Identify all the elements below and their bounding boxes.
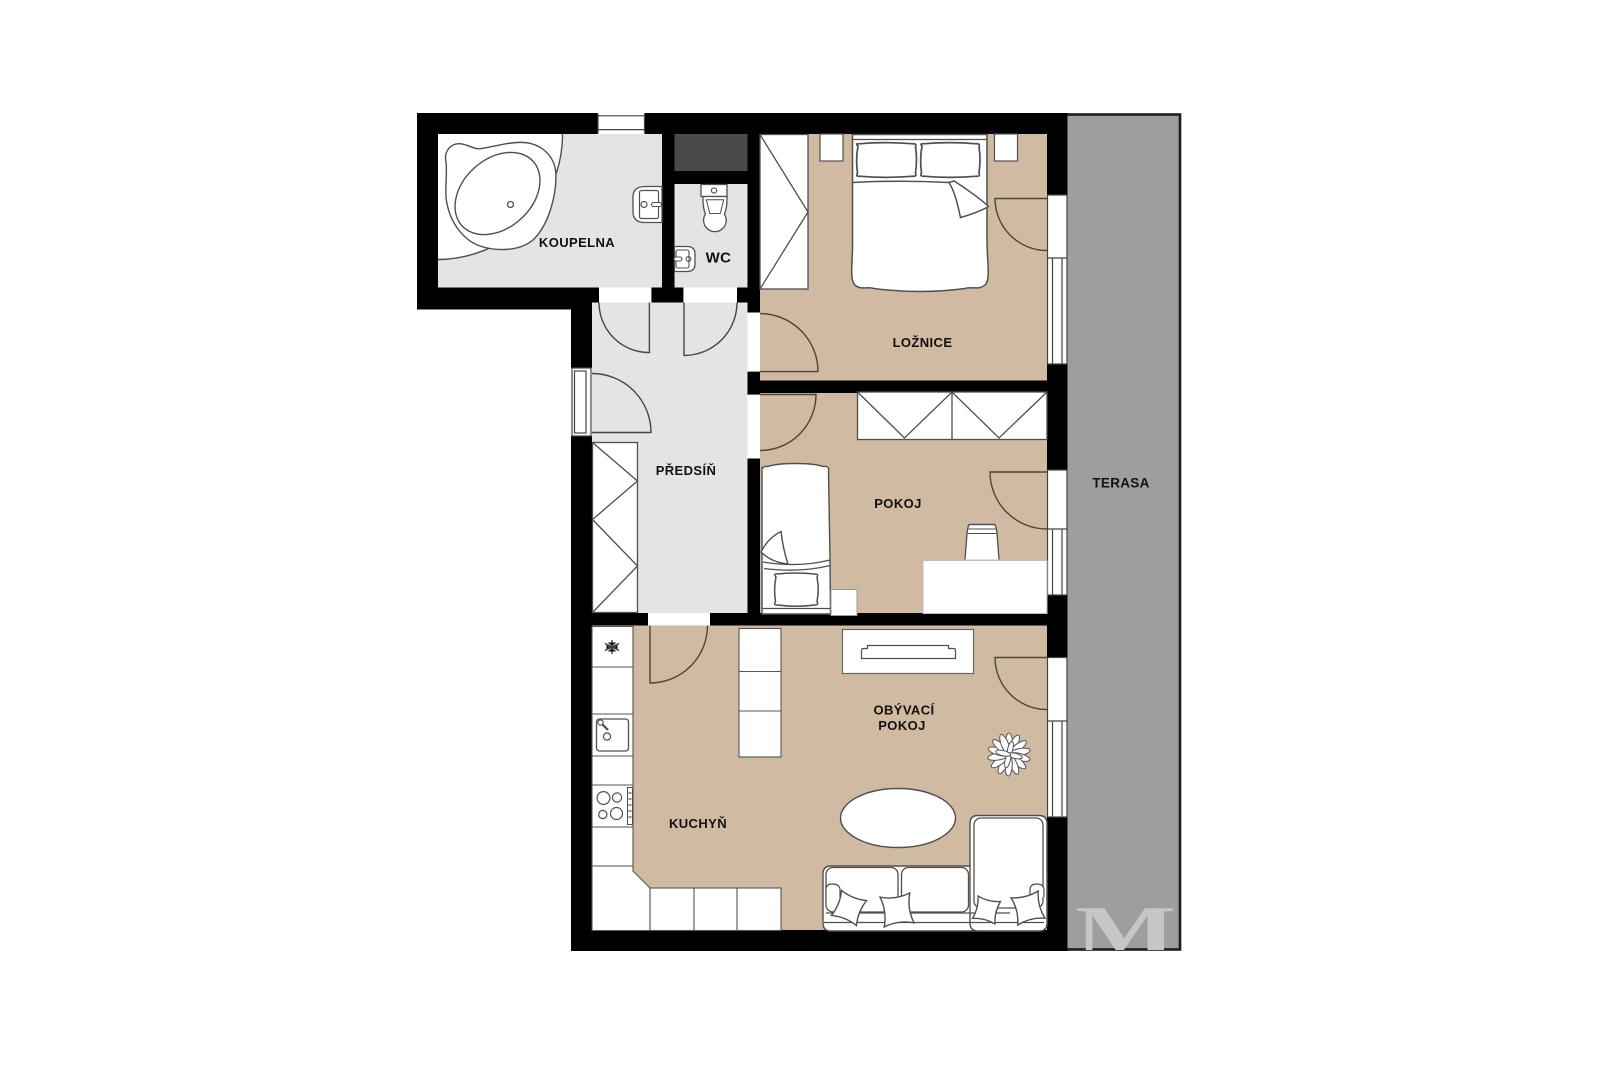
svg-text:OBÝVACÍ: OBÝVACÍ xyxy=(873,703,934,718)
svg-text:M: M xyxy=(1075,891,1176,969)
svg-text:PŘEDSÍŇ: PŘEDSÍŇ xyxy=(656,463,717,478)
svg-text:KOUPELNA: KOUPELNA xyxy=(539,235,615,250)
svg-text:POKOJ: POKOJ xyxy=(878,718,926,733)
svg-text:WC: WC xyxy=(706,250,732,267)
svg-text:POKOJ: POKOJ xyxy=(874,496,922,511)
svg-text:KUCHYŇ: KUCHYŇ xyxy=(669,816,727,831)
svg-text:LOŽNICE: LOŽNICE xyxy=(893,335,953,350)
svg-text:TERASA: TERASA xyxy=(1092,476,1149,491)
